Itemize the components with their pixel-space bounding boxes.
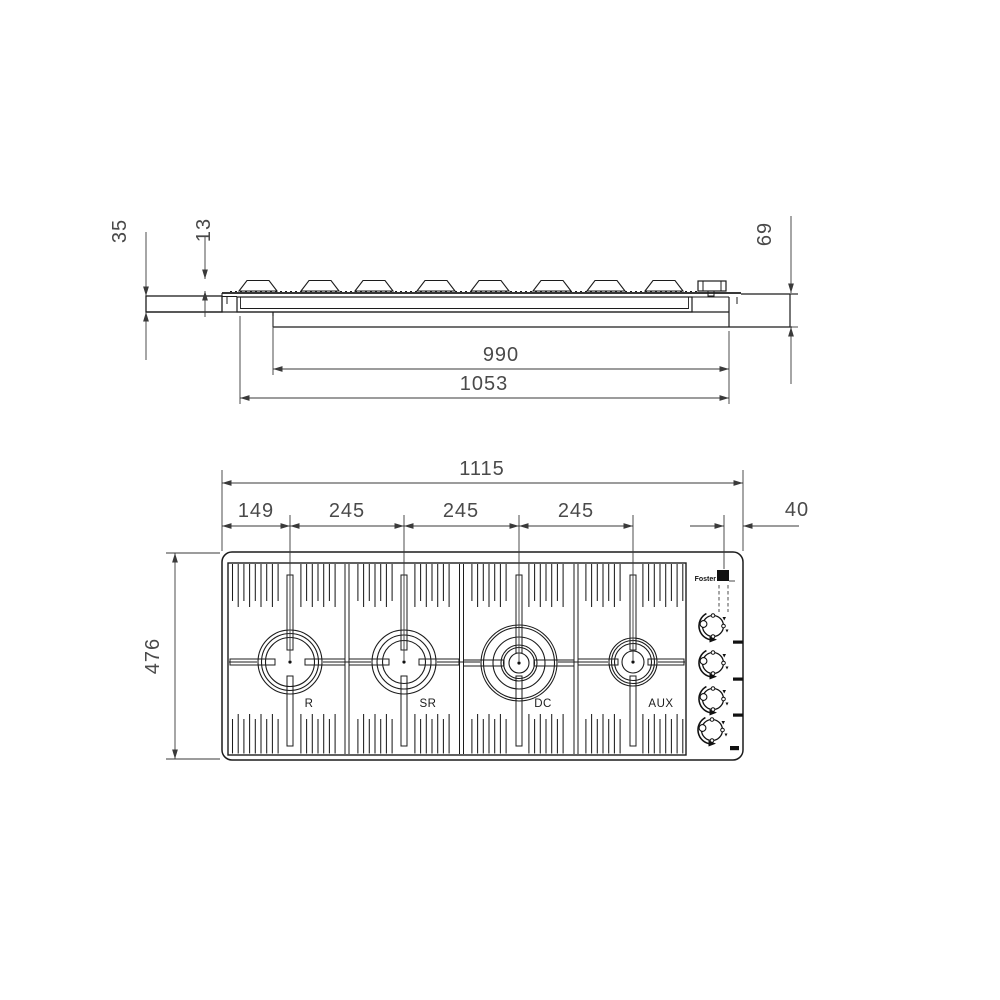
grate-foot — [645, 281, 683, 292]
flame-min-icon — [726, 667, 729, 670]
flame-max-icon — [723, 690, 727, 694]
grate-foot — [355, 281, 393, 292]
burner-sr-label: SR — [420, 698, 437, 710]
technical-drawing-page: R SR DC AUX Foster 35 13 69 990 1053 111… — [0, 0, 1000, 1000]
knob-dial-1 — [699, 614, 743, 644]
brand-text: Foster — [695, 576, 717, 583]
dimension-arrow — [395, 523, 405, 529]
dimension-arrow — [404, 523, 414, 529]
brand-mark-icon — [717, 570, 729, 581]
dimension-arrow — [222, 523, 232, 529]
burner-r — [230, 575, 345, 746]
dimension-arrow — [290, 523, 300, 529]
dimension-arrow — [202, 270, 208, 280]
flame-min-icon — [725, 734, 728, 737]
dim-knob-offset: 40 — [785, 499, 809, 521]
burner-aux-center — [631, 660, 634, 663]
grate-foot — [471, 281, 509, 292]
flame-max-icon — [723, 617, 727, 621]
dimension-arrow — [519, 523, 529, 529]
burner-indicator-bar — [733, 714, 743, 717]
dimension-arrow — [143, 287, 149, 297]
dim-overall-width: 1115 — [459, 458, 505, 480]
dim-grate-height: 13 — [193, 218, 215, 242]
dimension-arrow — [788, 284, 794, 294]
dim-cutout-width: 990 — [483, 344, 519, 366]
dimension-arrow — [143, 312, 149, 322]
flame-min-icon — [726, 703, 729, 706]
dimension-arrow — [222, 480, 232, 486]
dimension-arrow — [743, 523, 753, 529]
dim-body-width: 1053 — [460, 373, 509, 395]
dimension-arrow — [273, 366, 283, 372]
burner-indicator-bar-wide — [730, 746, 739, 750]
gas-hob-drawing: R SR DC AUX Foster 35 13 69 990 1053 111… — [0, 0, 1000, 1000]
burner-r-label: R — [305, 698, 314, 710]
grate-foot — [533, 281, 571, 292]
dimension-arrow — [788, 327, 794, 337]
burner-sr-center — [402, 660, 405, 663]
dim-worktop-thickness: 35 — [109, 219, 131, 243]
knob-dial-3 — [699, 687, 743, 717]
grate-foot — [587, 281, 625, 292]
dim-offset-left: 149 — [238, 500, 274, 522]
control-knobs — [698, 614, 743, 751]
flame-max-icon — [723, 654, 727, 658]
brand-logo: Foster — [695, 570, 735, 583]
dimension-arrow — [720, 366, 730, 372]
dimension-arrow — [172, 553, 178, 563]
burner-dc-center — [517, 661, 520, 664]
grate-foot — [417, 281, 455, 292]
burner-aux-label: AUX — [648, 698, 673, 710]
side-view — [146, 281, 798, 328]
dim-install-depth: 69 — [754, 222, 776, 246]
burner-dc-label: DC — [534, 698, 552, 710]
dimension-arrow — [720, 395, 730, 401]
dimension-arrow — [240, 395, 250, 401]
dim-burner-pitch-3: 245 — [558, 500, 594, 522]
worktop-left-section — [146, 296, 222, 312]
burner-aux — [578, 575, 684, 746]
flame-max-icon — [722, 721, 726, 725]
dimension-arrow — [624, 523, 634, 529]
dimension-arrow — [734, 480, 744, 486]
dimension-arrow — [715, 523, 725, 529]
dim-overall-depth: 476 — [142, 638, 164, 674]
recessed-tub-inner — [241, 298, 689, 309]
plan-view: R SR DC AUX Foster — [222, 552, 743, 760]
dimension-arrow — [281, 523, 291, 529]
dim-burner-pitch-1: 245 — [329, 500, 365, 522]
burner-indicator-bar — [733, 678, 743, 681]
dimension-arrow — [172, 750, 178, 760]
dimension-arrow — [510, 523, 520, 529]
grate-foot — [239, 281, 277, 292]
burner-r-center — [288, 660, 291, 663]
grate-foot — [301, 281, 339, 292]
knob-dial-4 — [698, 718, 739, 751]
knob-dial-2 — [699, 651, 743, 681]
burner-indicator-bar — [733, 641, 743, 644]
dim-burner-pitch-2: 245 — [443, 500, 479, 522]
flame-min-icon — [726, 630, 729, 633]
recessed-tub-outer — [237, 297, 692, 312]
pan-support-feet — [239, 281, 683, 292]
